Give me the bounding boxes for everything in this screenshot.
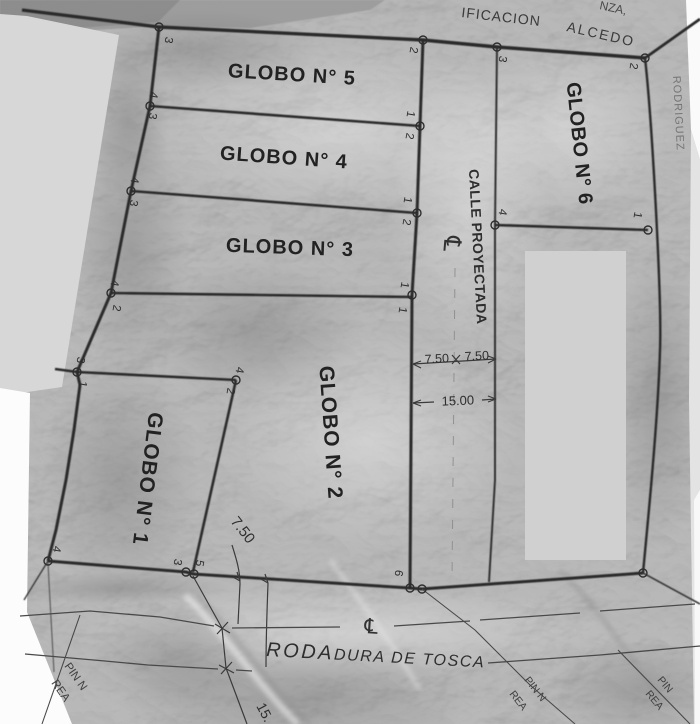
svg-text:7.50: 7.50	[424, 351, 449, 366]
svg-text:15.00: 15.00	[441, 392, 474, 408]
svg-text:℄: ℄	[437, 234, 465, 253]
svg-text:7.50: 7.50	[464, 348, 489, 363]
svg-text:℄: ℄	[363, 615, 380, 639]
svg-text:GLOBO N° 3: GLOBO N° 3	[226, 235, 355, 261]
